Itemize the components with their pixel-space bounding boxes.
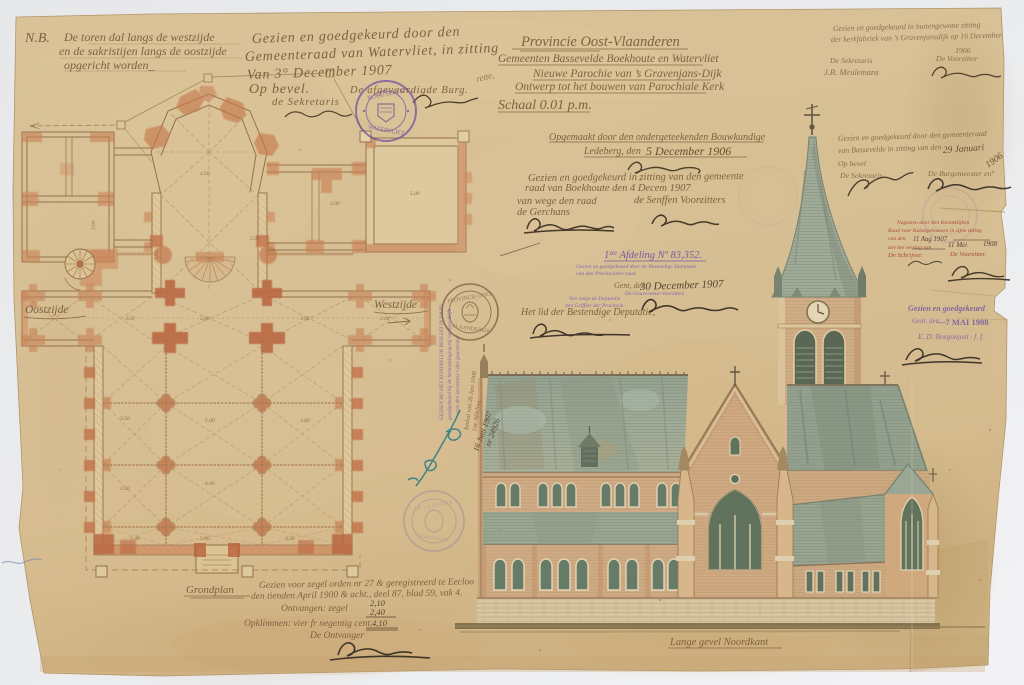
svg-text:E. D. Borgonjost · f. f.: E. D. Borgonjost · f. f. — [917, 332, 984, 341]
svg-text:3.00: 3.00 — [329, 201, 340, 207]
svg-text:5.00: 5.00 — [200, 536, 210, 542]
svg-text:De Schrijver.: De Schrijver. — [887, 252, 923, 259]
svg-text:2,40: 2,40 — [370, 607, 386, 617]
svg-text:en de sakristijen langs de oos: en de sakristijen langs de oostzijde — [59, 44, 227, 58]
svg-text:5.00: 5.00 — [410, 191, 420, 197]
svg-text:4,10: 4,10 — [372, 618, 388, 628]
svg-text:J.B. Meulemans: J.B. Meulemans — [824, 67, 879, 77]
svg-text:voor den secretaris • den gouv: voor den secretaris • den gouverneur — [455, 334, 461, 415]
svg-text:Raad voor Kunstgebouwen in zij: Raad voor Kunstgebouwen in zijne zitting — [887, 228, 982, 234]
svg-text:Gent. den: Gent. den — [912, 317, 940, 325]
svg-text:3.50: 3.50 — [119, 486, 130, 492]
svg-text:Ontwerp tot het bouwen van Par: Ontwerp tot het bouwen van Parochiale Ke… — [515, 81, 725, 93]
svg-text:―7 MAI 1908: ―7 MAI 1908 — [936, 317, 988, 327]
svg-text:Het lid der Bestendige Deputat: Het lid der Bestendige Deputatie, — [520, 307, 655, 318]
svg-text:van den Provincialen raad: van den Provincialen raad — [576, 271, 636, 277]
svg-text:opgericht worden_: opgericht worden_ — [64, 58, 156, 72]
svg-text:Opgemaakt door den ondergeteek: Opgemaakt door den ondergeteekenden Bouw… — [549, 132, 766, 143]
svg-text:6.00: 6.00 — [205, 481, 215, 487]
svg-text:Lange gevel Noordkant: Lange gevel Noordkant — [669, 637, 769, 648]
svg-text:de Sekretaris: de Sekretaris — [272, 96, 340, 108]
svg-text:Provincie Oost-Vlaanderen: Provincie Oost-Vlaanderen — [520, 34, 680, 50]
svg-text:Oostzijde: Oostzijde — [25, 304, 68, 316]
svg-text:1.50: 1.50 — [154, 250, 160, 260]
svg-text:De Gouverneur-Voorzitter,: De Gouverneur-Voorzitter, — [624, 291, 685, 297]
svg-text:N.B.: N.B. — [24, 31, 50, 46]
svg-text:De Voorzitter.: De Voorzitter. — [949, 251, 987, 258]
svg-text:1908: 1908 — [983, 240, 998, 248]
svg-text:5.00: 5.00 — [205, 418, 215, 424]
svg-text:Gemeenten Bassevelde Boekhoute: Gemeenten Bassevelde Boekhoute en Waterv… — [498, 53, 719, 65]
svg-text:3.60: 3.60 — [299, 418, 310, 424]
svg-text:3.60: 3.60 — [299, 316, 310, 322]
svg-text:Ontvangen: zegel: Ontvangen: zegel — [281, 604, 348, 614]
svg-text:de Gerchans: de Gerchans — [517, 207, 570, 218]
svg-text:1ste Afdeling Nº 83,352.: 1ste Afdeling Nº 83,352. — [604, 249, 702, 261]
svg-text:3.50: 3.50 — [124, 316, 135, 322]
svg-text:Grondplan: Grondplan — [186, 584, 234, 596]
svg-text:De Burgemeester enº: De Burgemeester enº — [927, 169, 994, 178]
svg-text:De Sekretaris: De Sekretaris — [829, 56, 872, 65]
svg-text:de Senffen Voorzitters: de Senffen Voorzitters — [634, 195, 726, 206]
svg-text:De Voorzitter: De Voorzitter — [935, 54, 979, 63]
svg-text:ziet het verslag van: ziet het verslag van — [887, 245, 932, 251]
svg-text:van wege den raad: van wege den raad — [517, 196, 597, 207]
svg-text:Gezien en goedgekeurd door de: Gezien en goedgekeurd door de Bestendige… — [576, 264, 697, 270]
svg-text:5.00: 5.00 — [200, 316, 210, 322]
svg-text:De toren dal langs de westzijd: De toren dal langs de westzijde — [63, 30, 215, 44]
svg-text:3.00: 3.00 — [91, 220, 97, 231]
svg-text:2.00: 2.00 — [380, 316, 390, 322]
svg-text:De Sekretaris: De Sekretaris — [839, 171, 882, 180]
svg-text:van den: van den — [888, 236, 906, 242]
svg-text:2.40: 2.40 — [130, 535, 140, 542]
svg-text:Op bevel.: Op bevel. — [249, 82, 310, 97]
svg-text:Op bevel: Op bevel — [838, 159, 866, 168]
svg-text:5 December 1906: 5 December 1906 — [646, 144, 731, 158]
svg-text:Schaal 0.01 p.m.: Schaal 0.01 p.m. — [498, 98, 592, 113]
svg-text:Van wege de Deputatie: Van wege de Deputatie — [569, 296, 621, 302]
svg-text:3.50: 3.50 — [119, 416, 130, 422]
svg-text:Gezien en goedgekeurd: Gezien en goedgekeurd — [908, 304, 986, 313]
svg-text:4.50: 4.50 — [200, 170, 210, 177]
svg-text:Westzijde: Westzijde — [374, 299, 417, 311]
svg-text:2.00: 2.00 — [250, 236, 260, 242]
svg-text:Ledeberg, den: Ledeberg, den — [583, 146, 641, 157]
svg-text:raad van Boekhoute den 4 Decem: raad van Boekhoute den 4 Decem 1907 — [525, 183, 691, 194]
svg-text:De Ontvanger: De Ontvanger — [309, 631, 364, 641]
svg-text:Nieuwe Parochie van ’s Gravenj: Nieuwe Parochie van ’s Gravenjans-Dijk — [532, 68, 722, 80]
svg-text:Opklimmen: vier fr negentig ce: Opklimmen: vier fr negentig cent. — [244, 618, 372, 629]
svg-text:3.50: 3.50 — [284, 536, 295, 542]
